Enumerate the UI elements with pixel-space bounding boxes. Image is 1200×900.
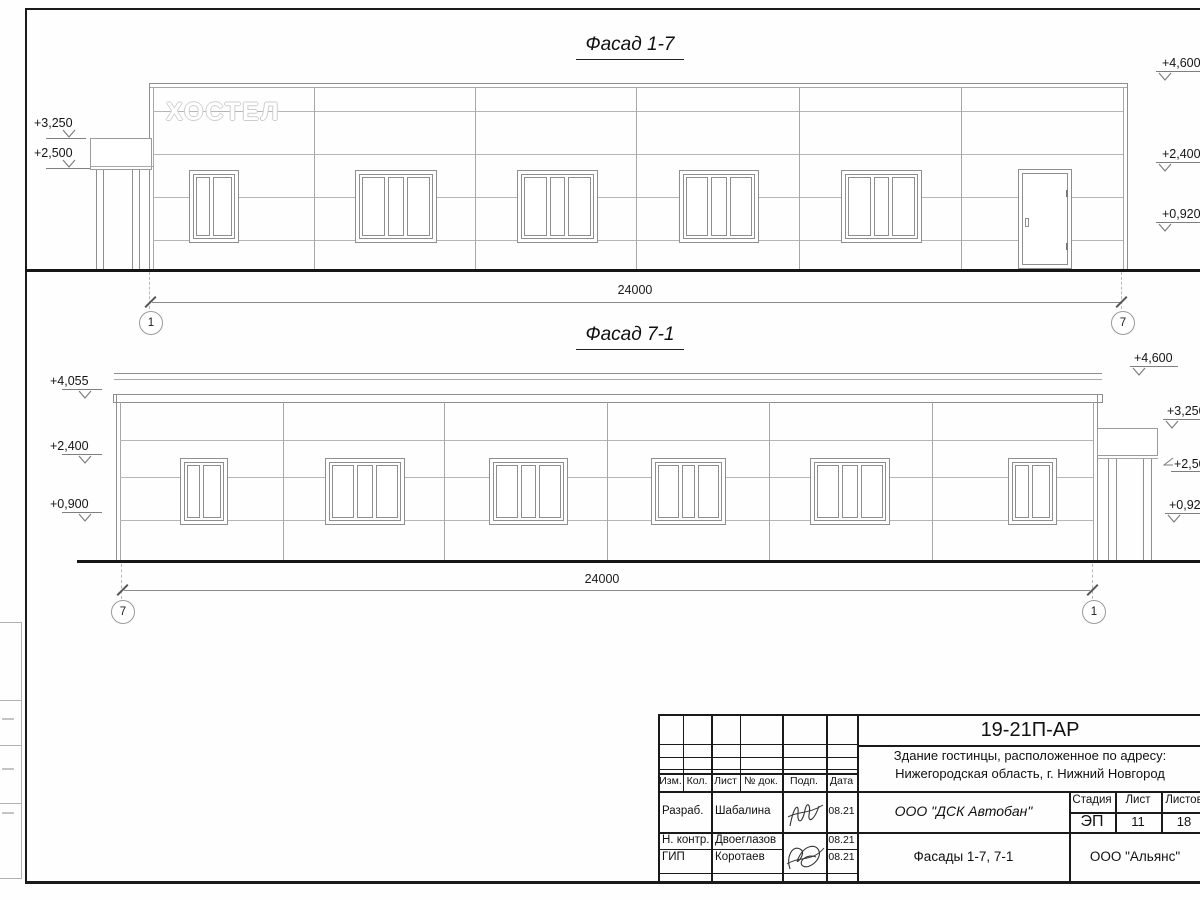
tb-col-podp: Подп. (782, 775, 826, 787)
window (841, 170, 922, 243)
tb-sheets-label: Листов (1161, 794, 1200, 806)
door-handle-icon (1025, 218, 1029, 227)
ground-line-facade1 (25, 269, 1200, 272)
tb-name: Шабалина (715, 791, 771, 832)
elevation-label: +4,600 (1134, 351, 1173, 365)
tb-project-line2: Нижегородская область, г. Нижний Новгоро… (860, 766, 1200, 781)
tb-sheet-title: Фасады 1-7, 7-1 (859, 832, 1068, 882)
axis-bubble-1: 1 (139, 311, 163, 335)
elevation-label: +4,055 (50, 374, 89, 388)
facade-7-1-title: Фасад 7-1 (540, 324, 720, 350)
tb-col-izm: Изм. (658, 775, 683, 787)
window (1008, 458, 1057, 525)
tb-col-list: Лист (711, 775, 740, 787)
elevation-label: +2,500 (1174, 457, 1200, 471)
elevation-label: +0,920 (1169, 498, 1200, 512)
tb-doc-number: 19-21П-АР (860, 716, 1200, 744)
tb-project-line1: Здание гостинцы, расположенное по адресу… (860, 748, 1200, 763)
window (489, 458, 568, 525)
tb-date: 08.21 (826, 791, 857, 832)
axis-bubble-7: 7 (1111, 311, 1135, 335)
elevation-label: +0,920 (1162, 207, 1200, 221)
elevation-label: +3,250 (1167, 404, 1200, 418)
elevation-arrow-icon (78, 455, 92, 464)
entrance-door (1018, 169, 1072, 269)
elevation-label: +4,600 (1162, 56, 1200, 70)
tb-stage-value: ЭП (1069, 812, 1115, 832)
elevation-label: +3,250 (34, 116, 73, 130)
tb-company: ООО "ДСК Автобан" (859, 791, 1068, 832)
window (355, 170, 437, 243)
elevation-arrow-icon (78, 513, 92, 522)
elevation-label: +0,900 (50, 497, 89, 511)
tb-name: Двоеглазов (715, 832, 776, 849)
building-sign-text: ХОСТЕЛ (166, 98, 280, 127)
tb-role: Разраб. (662, 791, 703, 832)
tb-col-data: Дата (826, 775, 857, 787)
elevation-arrow-icon (1158, 223, 1172, 232)
tb-contractor: ООО "Альянс" (1070, 832, 1200, 882)
window (679, 170, 759, 243)
elevation-arrow-icon (78, 390, 92, 399)
elevation-label: +2,400 (50, 439, 89, 453)
tb-sheets-value: 18 (1161, 812, 1200, 832)
tb-col-kol: Кол. (683, 775, 711, 787)
elevation-arrow-icon (1158, 72, 1172, 81)
tb-stage-label: Стадия (1069, 794, 1115, 806)
facade-1-7-title: Фасад 1-7 (540, 34, 720, 60)
tb-col-ndoc: № док. (740, 775, 782, 787)
signature (785, 797, 825, 831)
tb-name: Коротаев (715, 849, 765, 866)
dimension-label: 24000 (605, 283, 665, 297)
tb-date: 08.21 (826, 832, 857, 849)
tb-role: ГИП (662, 849, 685, 866)
elevation-arrow-icon (1158, 163, 1172, 172)
window (651, 458, 726, 525)
ground-line-facade2 (77, 560, 1200, 563)
window (180, 458, 228, 525)
axis-bubble-7: 7 (111, 600, 135, 624)
tb-role: Н. контр. (662, 832, 709, 849)
elevation-arrow-icon (1165, 420, 1179, 429)
elevation-arrow-icon (1132, 367, 1146, 376)
elevation-arrow-icon (62, 129, 76, 138)
window (810, 458, 890, 525)
elevation-label: +2,500 (34, 146, 73, 160)
tb-sheet-value: 11 (1115, 812, 1161, 832)
elevation-leader-icon (1163, 457, 1174, 466)
window (517, 170, 598, 243)
tb-date: 08.21 (826, 849, 857, 866)
drawing-sheet: Фасад 1-7 ХОСТЕЛ (0, 0, 1200, 900)
window (325, 458, 405, 525)
axis-bubble-1: 1 (1082, 600, 1106, 624)
elevation-label: +2,400 (1162, 147, 1200, 161)
signature (783, 836, 827, 874)
dimension-label: 24000 (572, 572, 632, 586)
window (189, 170, 239, 243)
elevation-arrow-icon (1167, 514, 1181, 523)
tb-sheet-label: Лист (1115, 794, 1161, 806)
elevation-arrow-icon (62, 159, 76, 168)
